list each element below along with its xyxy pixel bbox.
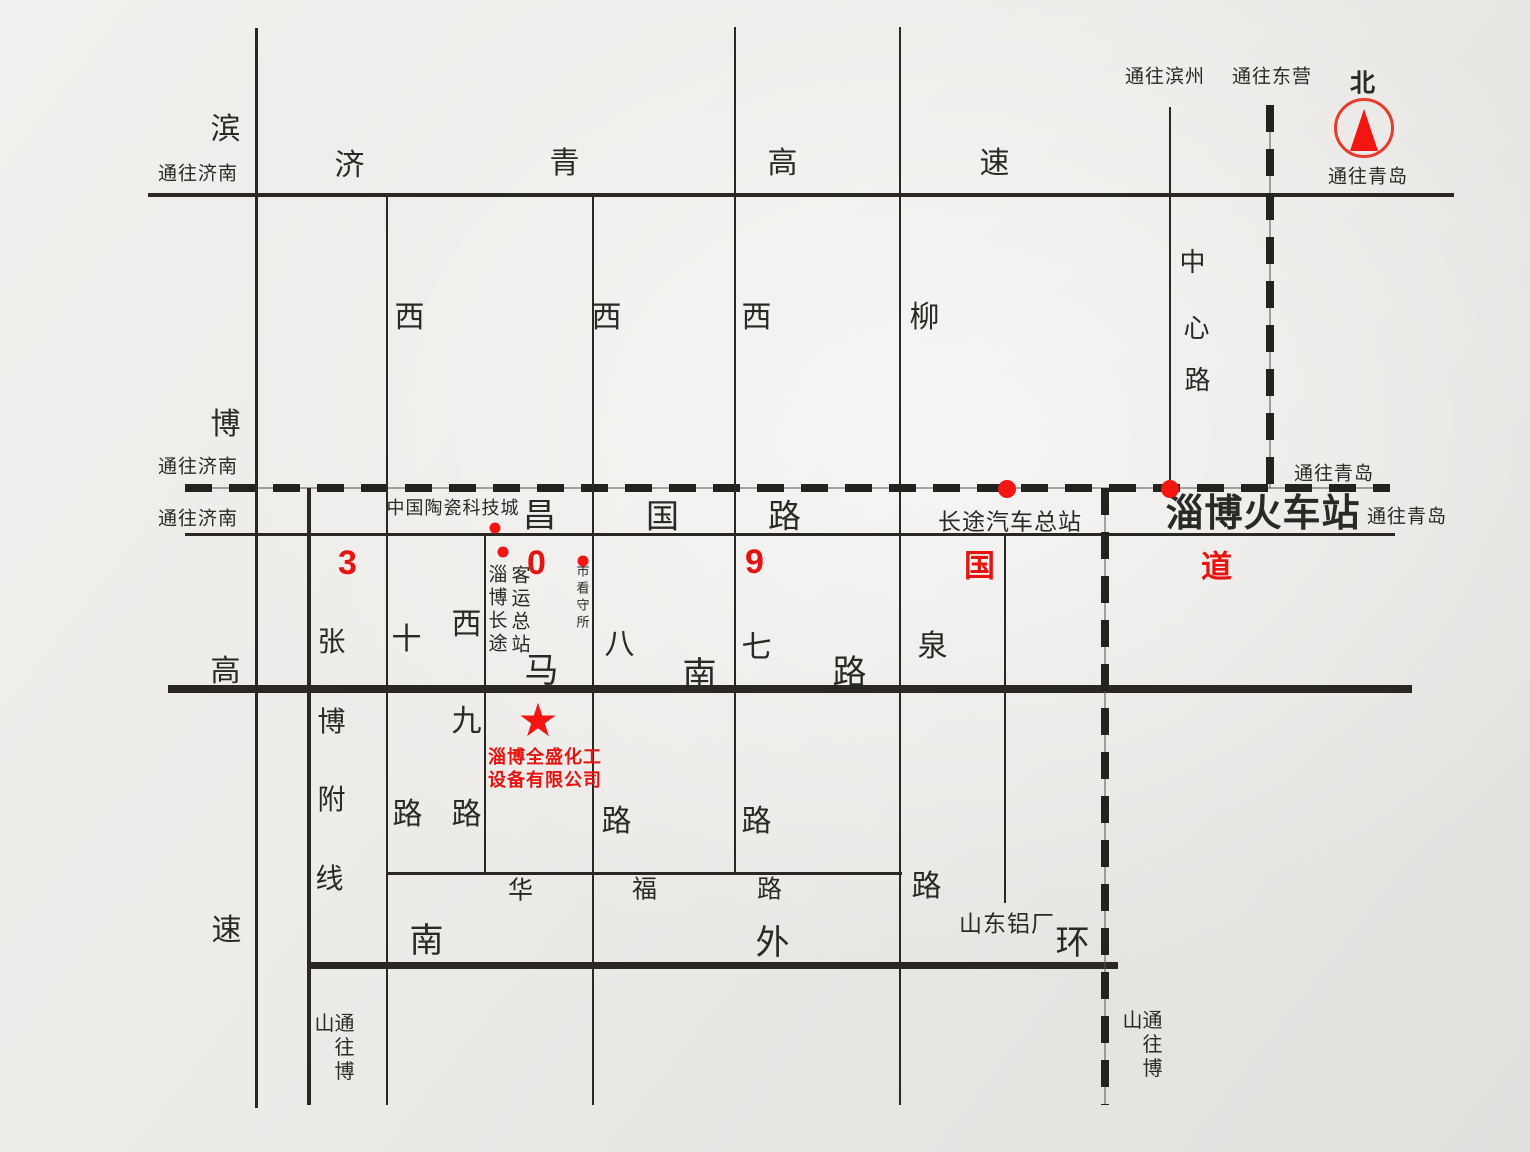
road-binbo-char-bin: 滨	[211, 115, 242, 145]
road-liuquan-char-liu: 柳	[910, 303, 941, 333]
dest-boshan-railway: 通往博山	[1120, 1010, 1160, 1105]
road-liuquan-char-lu: 路	[912, 872, 943, 902]
road-zhongxin-char-zhong: 中	[1179, 249, 1206, 275]
road-zhangbo-char-xian: 线	[315, 865, 344, 893]
poi-longdistance-bus-station: 长途汽车总站	[938, 511, 1082, 534]
poi-coach-terminal-col1: 淄博长途	[487, 564, 506, 656]
road-binbo-char-su: 速	[212, 916, 243, 946]
road-xishi-char-xi: 西	[395, 303, 426, 333]
poi-coach-terminal-col2: 客运总站	[510, 565, 529, 657]
road-binbo-expressway-line	[255, 28, 258, 1108]
poi-zibo-train-station: 淄博火车站	[1165, 495, 1360, 533]
road-manan-line	[168, 685, 1412, 693]
road-xiba-char-xi: 西	[592, 303, 623, 333]
road-huafu-char-fu: 福	[632, 878, 658, 903]
g309-digit-0: 0	[527, 546, 547, 580]
road-xishi-line	[386, 195, 388, 1105]
road-zhongxin-char-xin: 心	[1183, 315, 1210, 341]
dest-qingdao-railway: 通往青岛	[1294, 465, 1374, 484]
dot-ceramic-city	[490, 523, 501, 534]
road-changguo-char-chang: 昌	[523, 499, 557, 532]
railway-south-boshan-line	[1101, 488, 1109, 1105]
dest-jinan-changguo: 通往济南	[158, 510, 238, 529]
road-xijiu-char-jiu: 九	[452, 707, 483, 737]
location-map: ★ 济青高速滨博高速通往济南通往济南通往济南通往滨州通往东营北通往青岛通往青岛通…	[0, 0, 1530, 1152]
company-name-line2: 设备有限公司	[488, 771, 602, 789]
road-xijiu-char-xi: 西	[452, 610, 483, 640]
dest-jinan-expressway: 通往济南	[158, 165, 238, 184]
road-manan-char-nan: 南	[683, 658, 718, 692]
road-xishi-char-lu: 路	[393, 800, 424, 830]
road-zhongxin-char-lu: 路	[1184, 367, 1211, 393]
poi-ceramic-science-city: 中国陶瓷科技城	[387, 499, 520, 517]
road-nanwaihuan-line	[309, 962, 1118, 969]
road-liuquan-char-quan: 泉	[918, 632, 949, 662]
poi-shandong-aluminum: 山东铝厂	[959, 913, 1055, 936]
road-jiqing-char-su: 速	[980, 149, 1011, 179]
road-jiqing-char-ji: 济	[335, 151, 366, 181]
road-xishi-char-shi: 十	[392, 625, 423, 655]
road-zhangbo-char-bo: 博	[317, 708, 346, 736]
road-nanwaihuan-char-nan: 南	[410, 924, 445, 958]
road-manan-char-ma: 马	[525, 654, 560, 688]
north-arrow-icon	[1350, 109, 1378, 151]
dot-bus-station	[998, 480, 1016, 498]
dot-train-station	[1161, 480, 1179, 498]
dot-coach-terminal	[498, 547, 509, 558]
poi-detention-house: 市看守所	[576, 564, 589, 632]
road-xiba-char-lu: 路	[602, 807, 633, 837]
road-xiqi-char-lu: 路	[742, 807, 773, 837]
north-label: 北	[1350, 72, 1376, 97]
road-zhongxin-line	[1169, 107, 1171, 488]
road-nanwaihuan-char-huan: 环	[1056, 926, 1091, 960]
company-location-star-icon: ★	[517, 697, 558, 743]
road-xiqi-char-xi: 西	[742, 303, 773, 333]
dest-jinan-railway: 通往济南	[158, 458, 238, 477]
road-changguo-char-guo: 国	[646, 500, 680, 533]
road-zhangbo-char-zhang: 张	[317, 628, 346, 656]
road-liuquan-line	[899, 27, 901, 1105]
dest-boshan-road: 通往博山	[312, 1013, 352, 1106]
road-aluminum-plant-line	[1004, 533, 1006, 903]
g309-char-dao: 道	[1201, 552, 1233, 583]
north-compass-icon	[1334, 98, 1394, 158]
road-huafu-char-lu: 路	[757, 878, 783, 903]
dest-qingdao-expressway: 通往青岛	[1328, 168, 1408, 187]
railway-north-dongying-line	[1266, 105, 1274, 488]
road-jiqing-expressway-line	[148, 193, 1454, 197]
company-name-line1: 淄博全盛化工	[488, 748, 602, 766]
road-xijiu-char-lu: 路	[452, 800, 483, 830]
g309-char-guo: 国	[964, 551, 996, 582]
dot-detention-house	[578, 556, 589, 567]
g309-digit-9: 9	[745, 545, 765, 579]
road-huafu-char-hua: 华	[508, 879, 534, 904]
railway-jiaoji-line	[185, 484, 1390, 492]
g309-digit-3: 3	[338, 546, 358, 580]
dest-dongying: 通往东营	[1232, 68, 1312, 87]
road-changguo-char-lu: 路	[768, 500, 802, 533]
dest-qingdao-changguo: 通往青岛	[1367, 508, 1447, 527]
road-xiba-char-ba: 八	[605, 630, 636, 660]
road-jiqing-char-gao: 高	[768, 149, 799, 179]
road-nanwaihuan-char-wai: 外	[756, 926, 791, 960]
road-xiqi-line	[734, 27, 736, 874]
dest-binzhou: 通往滨州	[1125, 68, 1205, 87]
road-jiqing-char-qing: 青	[550, 149, 581, 179]
road-zhangbo-char-fu: 附	[317, 786, 346, 814]
road-binbo-char-gao: 高	[211, 657, 242, 687]
road-manan-char-lu: 路	[833, 656, 868, 690]
road-binbo-char-bo: 博	[211, 410, 242, 440]
road-xiqi-char-qi: 七	[742, 633, 773, 663]
